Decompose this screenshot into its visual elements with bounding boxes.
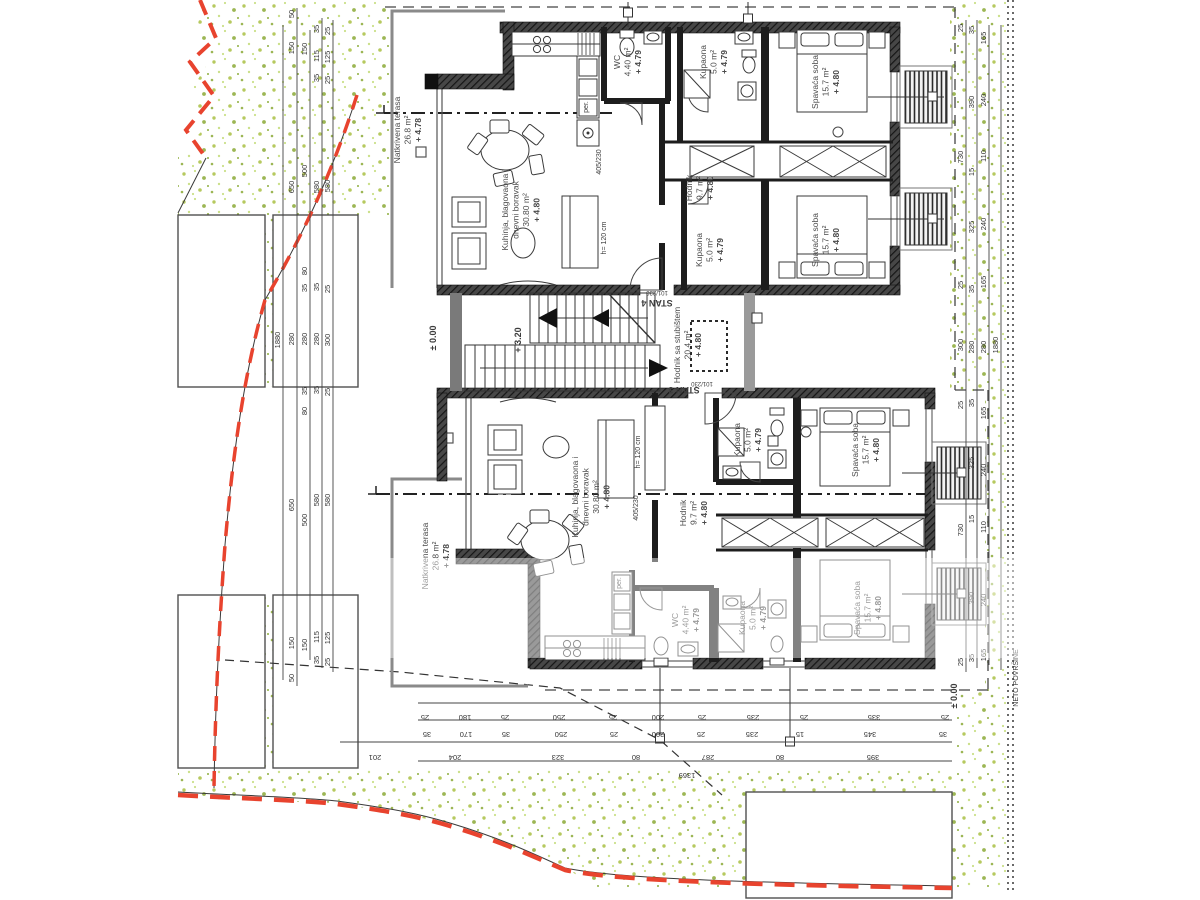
annotation: per. (583, 101, 590, 113)
dimension-label: 25 (323, 285, 332, 293)
dimension-label: 150 (300, 43, 309, 56)
dimension-label: 1369 (679, 771, 696, 780)
wall (890, 122, 900, 196)
grass-gap-lower (265, 595, 273, 768)
dimension-label: 250 (555, 730, 568, 739)
dimension-label: 35 (312, 74, 321, 82)
room-label: 15.7 m² (821, 225, 831, 254)
room-label: + 4.79 (633, 50, 643, 74)
neighbor-plot (178, 595, 265, 768)
room-label: 26.8 m² (403, 115, 413, 144)
annotation: 405/230 (596, 149, 603, 174)
dimension-label: 80 (632, 753, 640, 762)
dimension-label: 35 (300, 284, 309, 292)
dimension-label: 50 (287, 10, 296, 18)
dimension-label: 25 (609, 713, 617, 722)
dimension-label: 390 (967, 96, 976, 109)
dimension-label: 165 (979, 276, 988, 289)
room-label: 20.4 m² (683, 330, 693, 359)
stair-arrow-head (649, 359, 668, 377)
dimension-label: 125 (323, 632, 332, 645)
dimension-label: 35 (967, 285, 976, 293)
grass-strip-right (950, 0, 1008, 888)
dimension-label: 300 (323, 334, 332, 347)
room-label: + 4.80 (699, 501, 709, 525)
dimension-label: 580 (323, 180, 332, 193)
door-pivot (833, 127, 843, 137)
floor-plan-svg: Natkrivena terasa26.8 m²+ 4.78Kuhinja, b… (0, 0, 1200, 900)
room-label: + 4.80 (871, 438, 881, 462)
dimension-label: 240 (979, 94, 988, 107)
room-label: Hodnik sa stubištem (672, 307, 682, 384)
dimension-label: 35 (312, 656, 321, 664)
dimension-label: 125 (323, 51, 332, 64)
dimension-label: 300 (956, 339, 965, 352)
annotation: 405/230 (633, 495, 640, 520)
dimension-label: 200 (652, 713, 665, 722)
room-label: Spavaća soba (810, 55, 820, 109)
room-label: WC (612, 55, 622, 69)
dimension-label: 80 (776, 753, 784, 762)
dimension-label: 25 (421, 713, 429, 722)
shutter (902, 442, 986, 504)
room-label: Kupaona (698, 45, 708, 79)
shutter (868, 188, 952, 250)
neighbor-plot (178, 215, 265, 387)
dimension-label: 150 (287, 637, 296, 650)
level-marker: ± 0.00 (949, 684, 959, 709)
dimension-label: 580 (312, 494, 321, 507)
level-marker: ± 0.00 (428, 326, 438, 351)
room-label: + 4.80 (693, 333, 703, 357)
dimension-label: 25 (323, 27, 332, 35)
dimension-label: 345 (864, 730, 877, 739)
dimension-label: 25 (323, 388, 332, 396)
dimension-label: 650 (287, 181, 296, 194)
dimension-label: 35 (967, 26, 976, 34)
dimension-label: 730 (956, 151, 965, 164)
sofa (562, 196, 598, 268)
wardrobes-upper (690, 146, 886, 177)
room-label: 30.80 m² (591, 480, 601, 514)
floor-plan-canvas: Natkrivena terasa26.8 m²+ 4.78Kuhinja, b… (0, 0, 1200, 900)
room-label: Spavaća soba (850, 423, 860, 477)
annotation: h= 120 cm (601, 221, 608, 254)
dimension-label: 280 (967, 341, 976, 354)
room-label: 15.7 m² (861, 435, 871, 464)
half-wall-counter (645, 406, 665, 490)
dimension-label: 500 (300, 514, 309, 527)
room-label: + 4.80 (602, 485, 612, 509)
room-label: Kupaona (694, 233, 704, 267)
door-pivot (801, 427, 811, 437)
unit-label: STAN 4 (641, 298, 672, 308)
annotation: 101/230 (646, 289, 668, 295)
dimension-label: 580 (323, 494, 332, 507)
dimension-label: 25 (610, 730, 618, 739)
dimension-label: 25 (800, 713, 808, 722)
grass-area-top-left (178, 0, 390, 215)
room-label: + 4.79 (715, 238, 725, 262)
dimension-label: 25 (956, 281, 965, 289)
dimension-label: 115 (312, 50, 321, 62)
dimension-label: 580 (312, 181, 321, 194)
room-label: + 4.78 (413, 118, 423, 142)
room-label: Kuhinja, blagovaona i (570, 456, 580, 537)
dimension-label: 204 (449, 753, 462, 762)
dimension-label: 150 (300, 639, 309, 652)
dimension-label: 15 (967, 168, 976, 176)
terrace-door-handle (416, 147, 426, 157)
shutter (868, 66, 952, 128)
watermark-band (388, 558, 1048, 658)
dimension-label: 25 (956, 401, 965, 409)
section-flag (368, 486, 376, 494)
neighbor-plot (273, 215, 358, 387)
dimension-label: 150 (287, 42, 296, 55)
dimension-label: 650 (287, 499, 296, 512)
room-label: Hodnik (684, 174, 694, 201)
dimension-label: 25 (698, 713, 706, 722)
wall (674, 285, 900, 295)
dimension-label: 335 (868, 713, 881, 722)
dimension-label: 280 (312, 333, 321, 346)
dimension-label: 25 (956, 658, 965, 666)
dimension-label: 35 (967, 399, 976, 407)
dimension-label: 235 (747, 713, 760, 722)
dimension-label: 25 (941, 713, 949, 722)
rug (500, 398, 556, 402)
dimension-label: 280 (979, 341, 988, 354)
dimension-label: 235 (746, 730, 759, 739)
room-label: 9.7 m² (695, 176, 705, 200)
room-label: + 4.79 (753, 428, 763, 452)
dimension-label: 15 (796, 730, 804, 739)
wall (437, 393, 447, 481)
dimension-label: 240 (979, 464, 988, 477)
dimension-label: 35 (312, 25, 321, 33)
dimension-label: 25 (323, 658, 332, 666)
dimension-label: 35 (939, 730, 947, 739)
dimension-label: 395 (867, 753, 880, 762)
dimension-label: 80 (300, 267, 309, 275)
rug (500, 281, 556, 285)
room-label: 30.80 m² (521, 193, 531, 227)
dimension-label: 323 (552, 753, 565, 762)
room-label: 15.7 m² (821, 67, 831, 96)
stair-shaft-wall (744, 293, 755, 391)
wall (925, 462, 935, 550)
dimension-label: 165 (979, 32, 988, 45)
room-label: Kupaona (732, 423, 742, 457)
staircase (450, 293, 755, 391)
room-label: + 4.80 (831, 228, 841, 252)
stair-shaft-wall (450, 293, 462, 391)
dimension-label: 35 (300, 387, 309, 395)
dimension-label: 110 (979, 150, 988, 162)
room-label: 5.0 m² (743, 428, 753, 452)
level-marker: + 3.20 (513, 327, 523, 352)
wall (693, 658, 763, 669)
wall (805, 658, 935, 669)
dimension-label: 35 (423, 730, 431, 739)
wall-cap (425, 74, 438, 89)
room-label: Kuhinja, blagovaona i (500, 169, 510, 250)
room-label: 5.0 m² (705, 238, 715, 262)
room-label: 9.7 m² (689, 501, 699, 525)
room-label: Hodnik (678, 499, 688, 526)
room-label: + 4.80 (831, 70, 841, 94)
coffee-table (543, 436, 569, 458)
dimension-label: 80 (300, 407, 309, 415)
room-label: 4.40 m² (623, 47, 633, 76)
dimension-label: 325 (967, 457, 976, 470)
wall (890, 27, 900, 72)
dimension-label: 280 (300, 333, 309, 346)
dimension-label: 287 (702, 753, 715, 762)
dimension-label: 115 (312, 631, 321, 643)
dimension-label: 25 (697, 730, 705, 739)
dimension-label: 280 (287, 333, 296, 346)
annotation: h= 120 cm (635, 435, 642, 468)
dimension-label: 25 (501, 713, 509, 722)
dimension-label: 240 (979, 218, 988, 231)
room-label: + 4.80 (532, 198, 542, 222)
dimension-label: 15 (967, 515, 976, 523)
dimension-label: 165 (979, 407, 988, 420)
dimension-label: 1880 (273, 332, 282, 349)
dimension-label: 170 (460, 730, 473, 739)
room-label: Spavaća soba (810, 213, 820, 267)
wall (437, 74, 514, 89)
wall (925, 393, 935, 409)
dimension-label: 180 (459, 713, 472, 722)
annotation: 101/230 (691, 380, 713, 386)
dimension-label: 110 (979, 521, 988, 533)
room-label: Natkrivena terasa (392, 96, 402, 163)
dimension-label: 730 (956, 524, 965, 537)
dimension-label: 25 (956, 24, 965, 32)
dimension-label: 325 (967, 221, 976, 234)
room-label: dnevni boravak (581, 467, 591, 525)
dimension-label: 500 (300, 165, 309, 178)
room-label: + 4.79 (719, 50, 729, 74)
dimension-label: 35 (502, 730, 510, 739)
dimension-label: 50 (287, 674, 296, 682)
dimension-label: 25 (323, 76, 332, 84)
dimension-label: 1880 (991, 337, 1000, 354)
dimension-label: 35 (312, 283, 321, 291)
wardrobes-lower (722, 518, 924, 547)
room-label: 5.0 m² (709, 50, 719, 74)
stair-arrow-head (592, 309, 609, 327)
door-arc-wc-upper (620, 103, 642, 125)
dimension-label: 35 (312, 386, 321, 394)
room-label: dnevni boravak (511, 180, 521, 238)
dimension-label: 250 (553, 713, 566, 722)
room-label: + 4.80 (705, 176, 715, 200)
dimension-label: 201 (369, 753, 382, 762)
dimension-label: 200 (652, 730, 665, 739)
